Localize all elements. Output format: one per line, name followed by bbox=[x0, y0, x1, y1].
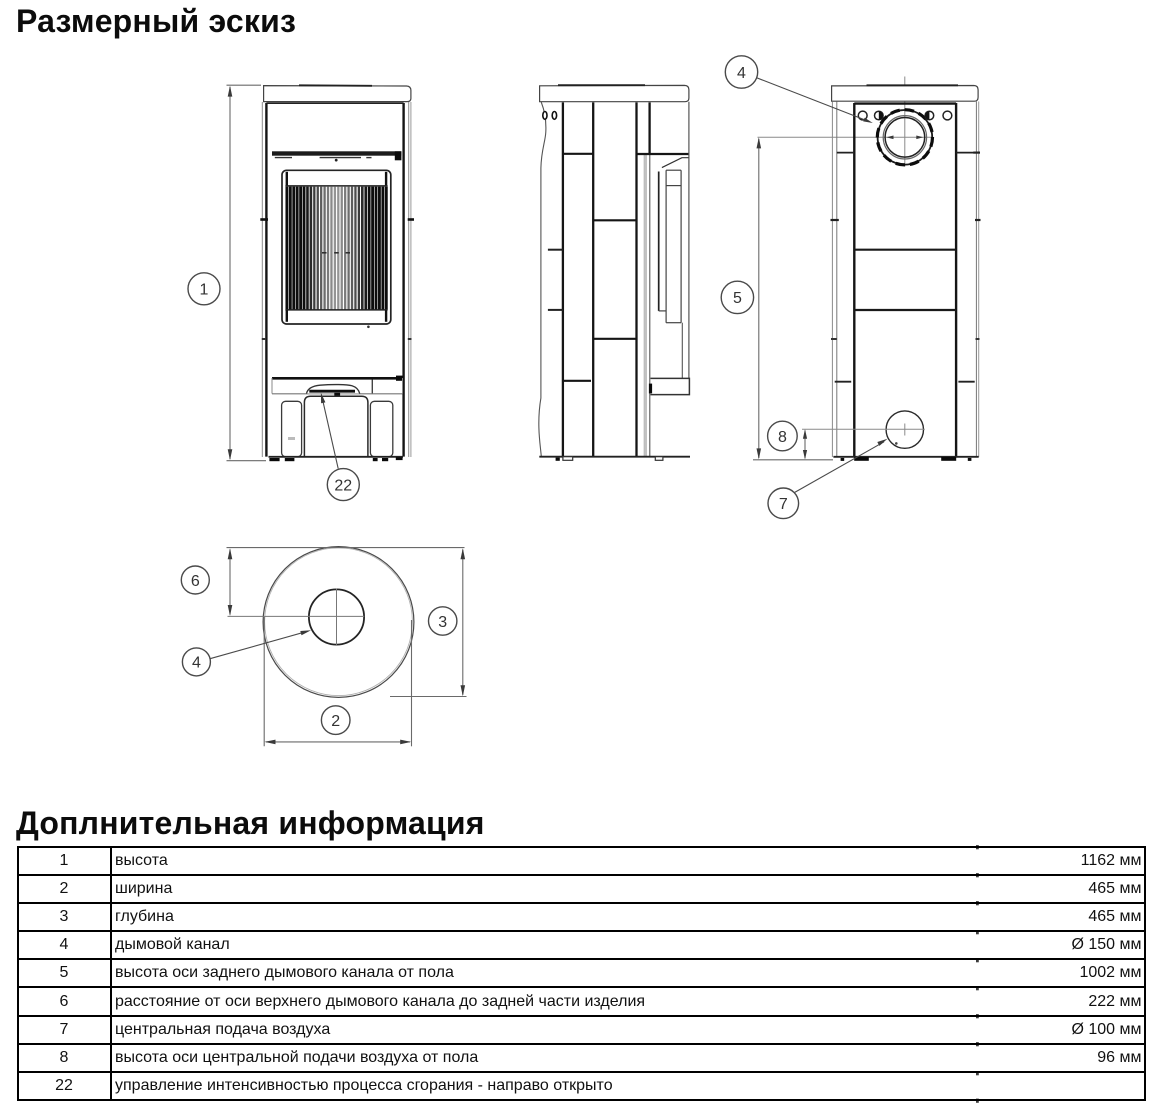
svg-text:22: 22 bbox=[334, 477, 352, 494]
svg-text:6: 6 bbox=[191, 573, 200, 590]
svg-text:5: 5 bbox=[733, 290, 742, 307]
svg-text:8: 8 bbox=[778, 429, 787, 446]
svg-text:4: 4 bbox=[192, 655, 201, 672]
svg-text:7: 7 bbox=[779, 496, 788, 513]
svg-text:3: 3 bbox=[438, 614, 447, 631]
svg-text:1: 1 bbox=[200, 282, 209, 299]
svg-text:2: 2 bbox=[331, 713, 340, 730]
svg-text:4: 4 bbox=[737, 65, 746, 82]
